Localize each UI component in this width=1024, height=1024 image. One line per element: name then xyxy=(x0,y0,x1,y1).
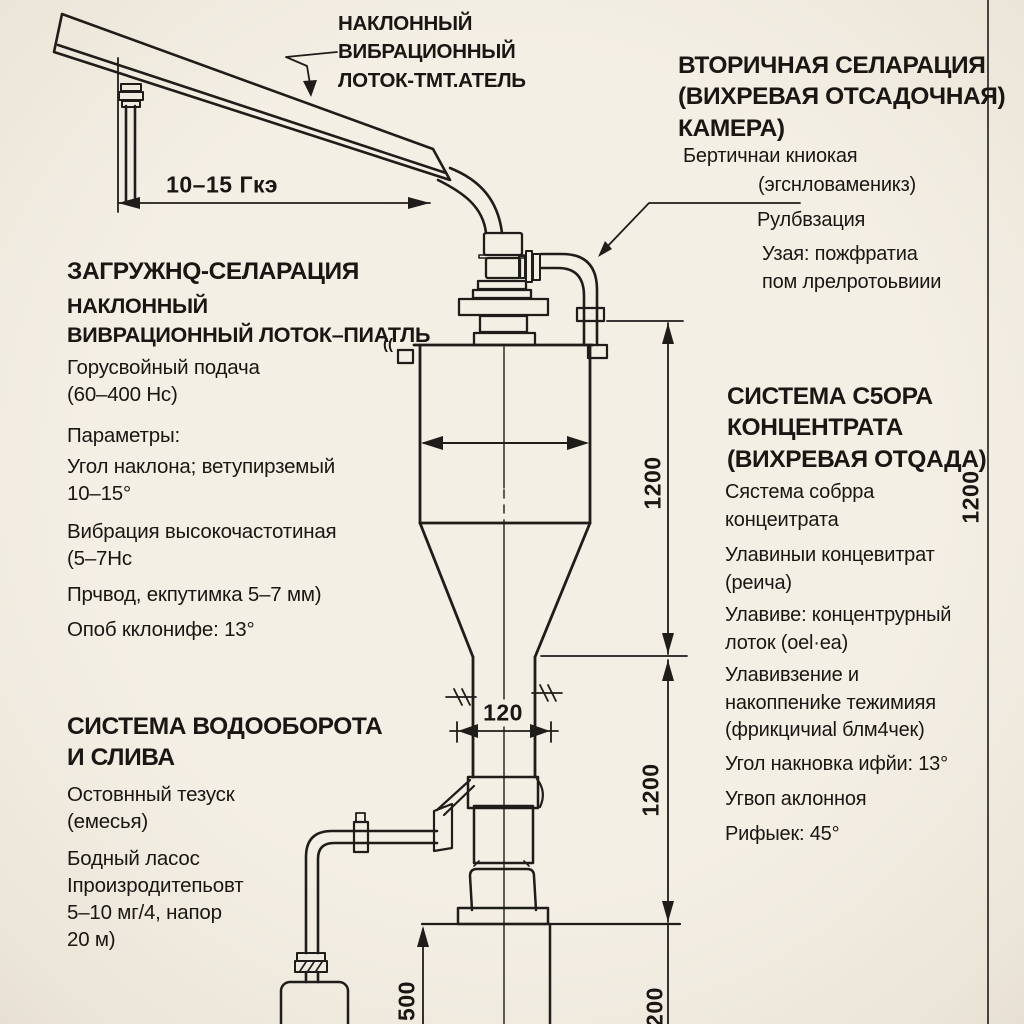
corner-mark: (( xyxy=(383,336,393,353)
feeder-support-post xyxy=(119,84,143,202)
loading-p2: Параметры: xyxy=(67,422,180,449)
inlet-fitting-stack xyxy=(459,233,548,345)
base-offset-dimension-label: 200 xyxy=(642,987,669,1024)
collect-p5: Угол накновка ифйи: 13° xyxy=(725,751,948,779)
base-height-dimension-label: 500 xyxy=(394,981,421,1021)
feeder-callout-leader xyxy=(286,52,337,97)
height-lower-dimension-label: 1200 xyxy=(638,763,665,816)
loading-p6: Опоб кклонифе: 13° xyxy=(67,616,254,643)
water-p1: Остовнный тезуск (емесья) xyxy=(67,781,235,835)
collect-p4: Улавивзение и накоппениkе тежимияя (фрик… xyxy=(725,662,936,745)
feeder-callout-label: НАКЛОННЫЙ ВИБРАЦИОННЫЙ ЛОТОК-ТМТ.АТЕЛЬ xyxy=(338,10,526,95)
collect-p1: Сястема собрра концеитрата xyxy=(725,479,874,534)
loading-p5: Прчвод, екпутимка 5–7 мм) xyxy=(67,581,321,608)
technical-diagram-page: НАКЛОННЫЙ ВИБРАЦИОННЫЙ ЛОТОК-ТМТ.АТЕЛЬ 1… xyxy=(0,0,1024,1024)
concentrate-system-title: СИСТЕМА С5ОРА КОНЦЕНТРАТА (ВИХРЕВАЯ ОТQА… xyxy=(727,381,986,475)
secondary-p3: Рулбвзация xyxy=(757,207,865,235)
secondary-separation-title: ВТОРИЧНАЯ СЕЛАРАЦИЯ (ВИХРЕВАЯ ОТСАДОЧНАЯ… xyxy=(678,50,1005,144)
collect-p2: Улавиныи концевитрат (реича) xyxy=(725,542,935,597)
loading-subtitle: НАКЛОННЫЙ ВИВРАЦИОННЫЙ ЛОТОК–ПИАТЛЬ xyxy=(67,292,430,349)
height-dimensions xyxy=(541,321,687,1024)
water-p2: Бодный ласос Iпроизродитепьовт 5–10 мг/4… xyxy=(67,845,243,953)
loading-p1: Горусвойный подача (60–400 Нс) xyxy=(67,354,260,408)
secondary-p2: (эгснловаменикз) xyxy=(758,172,916,200)
secondary-p1: Бертичнаи книокая xyxy=(683,143,857,171)
feeder-span-dimension-label: 10–15 Гкэ xyxy=(166,172,278,199)
height-upper-dimension-label: 1200 xyxy=(640,456,667,509)
loading-p3: Угол наклона; ветупирземый 10–15° xyxy=(67,453,335,507)
collect-p7: Рифыек: 45° xyxy=(725,821,839,849)
height-right-dimension-label: 1200 xyxy=(958,470,985,523)
vessel-width-arrow xyxy=(421,436,589,450)
collect-p6: Угвоп аклонноя xyxy=(725,786,866,814)
collect-p3: Улавиве: концентрурный лоток (oel·ea) xyxy=(725,602,951,657)
loading-separation-title: ЗАГРУЖНQ-СЕЛАРАЦИЯ xyxy=(67,256,359,287)
overflow-pipe xyxy=(519,251,607,358)
secondary-p4: Узая: пожфратиа пом лрелротоьвиии xyxy=(762,241,941,296)
throat-width-dimension-label: 120 xyxy=(479,700,527,727)
loading-p4: Вибрация высокочастотиная (5–7Нс xyxy=(67,518,336,572)
water-system-title: СИСТЕМА ВОДООБОРОТА И СЛИВА xyxy=(67,711,382,774)
